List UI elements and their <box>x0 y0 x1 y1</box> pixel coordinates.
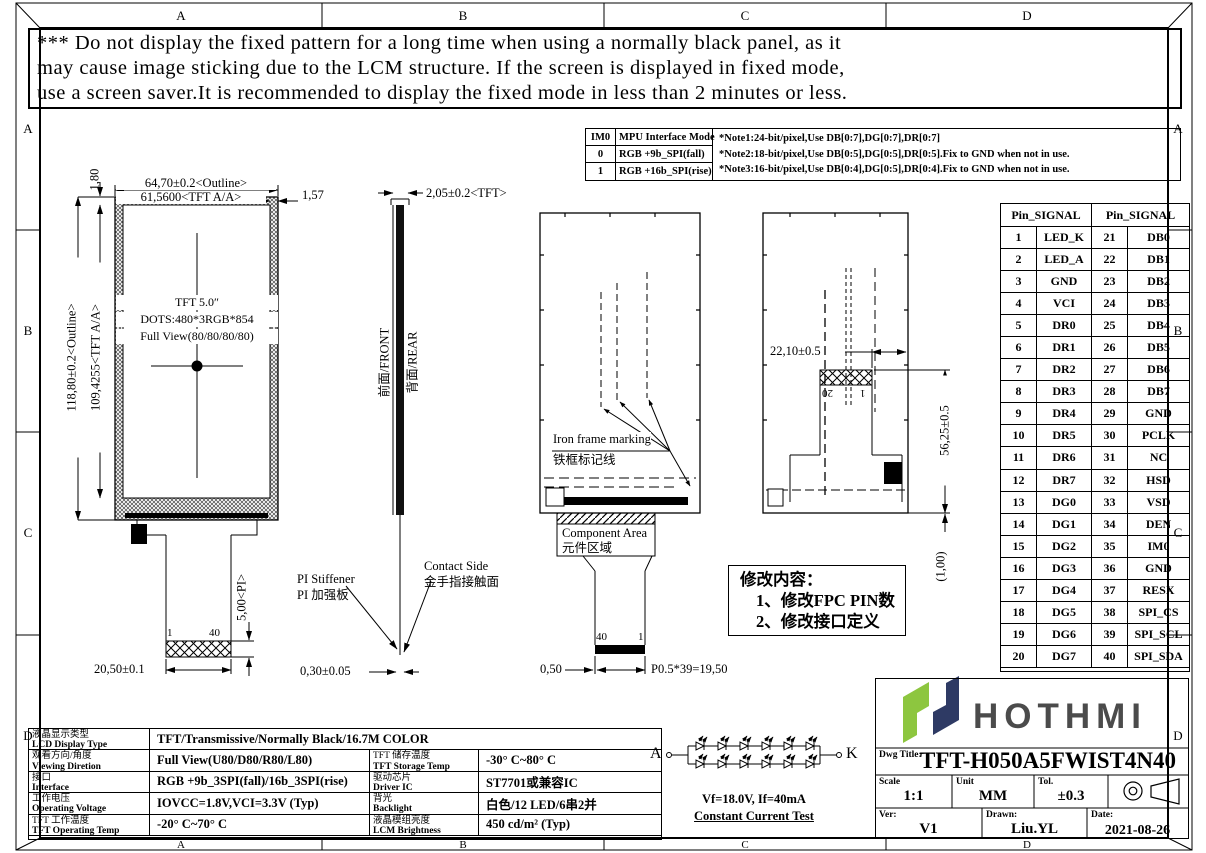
rear-right-dim-height: 56,25±0.5 <box>939 376 952 486</box>
spec-label-en: Viewing Diretion <box>32 762 149 772</box>
spec-label-en: Operating Voltage <box>32 804 149 814</box>
pin-signal-cell: DR0 <box>1037 315 1092 337</box>
scale-value: 1:1 <box>875 788 952 805</box>
pin-signal-cell: DG0 <box>1037 492 1092 514</box>
rear-left-dim-pitch: P0.5*39=19,50 <box>651 663 728 676</box>
if-note: *Note2:18-bit/pixel,Use DB[0:5],DG[0:5],… <box>719 147 1180 163</box>
rear-left-component-en: Component Area <box>562 526 647 541</box>
side-view-lineart <box>346 193 431 672</box>
pin-signal-cell: SPI_SCL <box>1128 624 1189 646</box>
rear-left-marking-zh: 铁框标记线 <box>553 453 616 468</box>
date-label: Date: <box>1091 810 1113 820</box>
pin-signal-cell: PCLK <box>1128 425 1189 447</box>
led-symbol <box>696 760 704 768</box>
led-symbol <box>806 742 814 750</box>
front-dim-outline-width: 64,70±0.2<Outline> <box>116 177 276 190</box>
front-dim-side-gap: 1,57 <box>302 189 324 202</box>
pin-signal-cell: DG3 <box>1037 558 1092 580</box>
zone-letter-left-c: C <box>8 525 48 541</box>
if-row-im0: 0 <box>586 146 616 163</box>
pin-signal-cell: RESX <box>1128 580 1189 602</box>
front-view-lineart <box>78 182 298 676</box>
pin-number-cell: 25 <box>1092 315 1128 337</box>
pin-number-cell: 40 <box>1092 646 1128 668</box>
pin-signal-cell: DB4 <box>1128 315 1189 337</box>
pin-signal-cell: SPI_SDA <box>1128 646 1189 668</box>
spec-label-en: LCM Brightness <box>373 826 478 836</box>
spec-label-en: Interface <box>32 783 149 793</box>
led-spec-text: Vf=18.0V, If=40mA <box>654 792 854 807</box>
pin-signal-cell: VCI <box>1037 293 1092 315</box>
pin-number-cell: 13 <box>1001 492 1037 514</box>
pin-signal-cell: DG1 <box>1037 514 1092 536</box>
pin-number-cell: 32 <box>1092 470 1128 492</box>
spec-value-cell: -30° C~80° C <box>479 750 661 771</box>
spec-label-cell: TFT 储存温度TFT Storage Temp <box>370 750 479 771</box>
pin-signal-cell: LED_A <box>1037 249 1092 271</box>
spec-label-en: Backlight <box>373 804 478 814</box>
led-symbol <box>718 742 726 750</box>
pin-number-cell: 35 <box>1092 536 1128 558</box>
pin-signal-cell: DG6 <box>1037 624 1092 646</box>
front-title-line: Full View(80/80/80/80) <box>116 329 278 344</box>
drawn-value: Liu.YL <box>982 821 1087 838</box>
pin-number-cell: 18 <box>1001 602 1037 624</box>
led-symbol <box>740 742 748 750</box>
spec-value-cell: IOVCC=1.8V,VCI=3.3V (Typ) <box>150 793 370 814</box>
pin-number-cell: 8 <box>1001 381 1037 403</box>
hothmi-logo-text: HOTHMI <box>973 697 1147 737</box>
spec-label-cell: 驱动芯片Driver IC <box>370 772 479 793</box>
pin-number-cell: 33 <box>1092 492 1128 514</box>
pin-table-header: Pin_SIGNAL <box>1092 204 1189 227</box>
pin-signal-cell: DG2 <box>1037 536 1092 558</box>
rear-left-dim-edge: 0,50 <box>540 663 562 676</box>
zone-letter-left-b: B <box>8 323 48 339</box>
pin-number-cell: 27 <box>1092 359 1128 381</box>
pin-number-cell: 37 <box>1092 580 1128 602</box>
spec-value-cell: 白色/12 LED/6串2并 <box>479 793 661 814</box>
if-col1-header: IM0 <box>586 129 616 146</box>
pin-signal-cell: DG4 <box>1037 580 1092 602</box>
pin-number-cell: 22 <box>1092 249 1128 271</box>
pin-number-cell: 29 <box>1092 403 1128 425</box>
pin-number-cell: 2 <box>1001 249 1037 271</box>
pin-signal-cell: DG7 <box>1037 646 1092 668</box>
spec-label-zh: 背光 <box>373 794 478 804</box>
pin-number-cell: 17 <box>1001 580 1037 602</box>
side-stiffener-label-zh: PI 加强板 <box>297 588 349 603</box>
pin-signal-cell: DR2 <box>1037 359 1092 381</box>
rear-right-dim-thickness: (1,00) <box>935 539 948 595</box>
pin-table: Pin_SIGNALPin_SIGNAL1LED_K21DB02LED_A22D… <box>1000 203 1190 672</box>
side-front-label: 前面/FRONT <box>378 308 393 418</box>
unit-value: MM <box>952 788 1034 805</box>
pin-signal-cell: DB5 <box>1128 337 1189 359</box>
spec-value-cell: -20° C~70° C <box>150 815 370 836</box>
zone-letter-top-a: A <box>161 8 201 24</box>
revision-title: 修改内容： <box>729 569 905 590</box>
interface-mode-table: IM0 MPU Interface Mode *Note1:24-bit/pix… <box>585 128 1181 181</box>
pin-signal-cell: HSD <box>1128 470 1189 492</box>
pin-number-cell: 20 <box>1001 646 1037 668</box>
spec-label-zh: 工作电压 <box>32 794 149 804</box>
ver-value: V1 <box>875 821 982 838</box>
front-pin-last: 40 <box>209 628 220 639</box>
pin-number-cell: 30 <box>1092 425 1128 447</box>
if-row-mode: RGB +9b_SPI(fall) <box>616 146 713 163</box>
pin-number-cell: 31 <box>1092 447 1128 469</box>
rear-left-pin-left: 40 <box>596 632 607 643</box>
pin-signal-cell: NC <box>1128 447 1189 469</box>
spec-label-en: LCD Display Type <box>32 740 149 750</box>
rear-left-component-zh: 元件区域 <box>562 541 612 556</box>
led-symbol <box>784 742 792 750</box>
spec-label-zh: 观看方向/角度 <box>32 751 149 761</box>
pin-table-header: Pin_SIGNAL <box>1001 204 1092 227</box>
led-symbol <box>762 760 770 768</box>
zone-letter-top-c: C <box>725 8 765 24</box>
spec-label-cell: 工作电压Operating Voltage <box>29 793 150 814</box>
dwg-title-value: TFT-H050A5FWIST4N40 <box>920 748 1170 774</box>
pin-number-cell: 23 <box>1092 271 1128 293</box>
front-dim-pi: 5,00<PI> <box>236 555 249 641</box>
side-contact-label-en: Contact Side <box>424 559 488 574</box>
pin-signal-cell: DR4 <box>1037 403 1092 425</box>
led-test-label: Constant Current Test <box>654 809 854 824</box>
pin-number-cell: 24 <box>1092 293 1128 315</box>
ver-label: Ver: <box>879 810 897 820</box>
warning-line: use a screen saver.It is recommended to … <box>30 81 1180 106</box>
pin-number-cell: 36 <box>1092 558 1128 580</box>
spec-value-cell: RGB +9b_3SPI(fall)/16b_3SPI(rise) <box>150 772 370 793</box>
pin-number-cell: 4 <box>1001 293 1037 315</box>
scale-label: Scale <box>879 777 900 787</box>
zone-letter-left-a: A <box>8 121 48 137</box>
zone-letter-bottom-c: C <box>725 839 765 851</box>
spec-label-cell: TFT 工作温度TFT Operating Temp <box>29 815 150 836</box>
front-title-line: TFT 5.0″ <box>116 295 278 310</box>
dwg-title-label: Dwg Title: <box>879 750 922 760</box>
spec-value-cell: 450 cd/m² (Typ) <box>479 815 661 836</box>
led-symbol <box>718 760 726 768</box>
led-symbol <box>806 760 814 768</box>
drawing-sheet: A B C D A B C D A B C D A B C D *** Do n… <box>0 0 1206 853</box>
zone-letter-top-b: B <box>443 8 483 24</box>
pin-number-cell: 5 <box>1001 315 1037 337</box>
led-symbol <box>784 760 792 768</box>
rear-right-pin-right: 1 <box>860 387 866 398</box>
unit-label: Unit <box>956 777 974 787</box>
warning-line: *** Do not display the fixed pattern for… <box>30 31 1180 56</box>
pin-number-cell: 12 <box>1001 470 1037 492</box>
pin-signal-cell: DR6 <box>1037 447 1092 469</box>
spec-label-zh: 液晶显示类型 <box>32 730 149 740</box>
tol-value: ±0.3 <box>1034 788 1108 805</box>
pin-number-cell: 28 <box>1092 381 1128 403</box>
zone-letter-bottom-d: D <box>1007 839 1047 851</box>
pin-number-cell: 11 <box>1001 447 1037 469</box>
front-dim-top-gap: 1,80 <box>89 160 102 200</box>
side-dim-thickness: 2,05±0.2<TFT> <box>426 187 507 200</box>
pin-number-cell: 39 <box>1092 624 1128 646</box>
if-row-im0: 1 <box>586 163 616 180</box>
spec-label-cell: 液晶模组亮度LCM Brightness <box>370 815 479 836</box>
front-dim-aa-height: 109,4255<TFT A/A> <box>90 263 103 453</box>
spec-label-cell: 接口Interface <box>29 772 150 793</box>
pin-number-cell: 10 <box>1001 425 1037 447</box>
date-value: 2021-08-26 <box>1087 823 1188 839</box>
pin-number-cell: 14 <box>1001 514 1037 536</box>
pin-signal-cell: SPI_CS <box>1128 602 1189 624</box>
side-contact-label-zh: 金手指接触面 <box>424 575 499 590</box>
pin-signal-cell: VSD <box>1128 492 1189 514</box>
revision-box: 修改内容： 1、修改FPC PIN数 2、修改接口定义 <box>728 565 906 636</box>
front-dim-tail-width: 20,50±0.1 <box>94 663 145 676</box>
led-symbol <box>696 742 704 750</box>
rear-left-marking-en: Iron frame marking <box>553 432 651 447</box>
side-rear-label: 背面/REAR <box>406 308 421 418</box>
spec-label-zh: TFT 工作温度 <box>32 816 149 826</box>
led-anode-label: A <box>650 745 662 763</box>
rear-view-right-lineart <box>763 213 950 532</box>
pin-number-cell: 9 <box>1001 403 1037 425</box>
pin-signal-cell: DB3 <box>1128 293 1189 315</box>
spec-label-en: Driver IC <box>373 783 478 793</box>
pin-signal-cell: DR7 <box>1037 470 1092 492</box>
spec-label-cell: 观看方向/角度Viewing Diretion <box>29 750 150 771</box>
spec-label-zh: TFT 储存温度 <box>373 751 478 761</box>
tol-label: Tol. <box>1038 777 1053 787</box>
spec-label-cell: 液晶显示类型LCD Display Type <box>29 729 150 750</box>
front-title-line: DOTS:480*3RGB*854 <box>116 312 278 327</box>
pin-number-cell: 15 <box>1001 536 1037 558</box>
pin-signal-cell: GND <box>1128 558 1189 580</box>
side-dim-pi-thickness: 0,30±0.05 <box>300 665 351 678</box>
rear-right-pin-left: 20 <box>822 387 833 398</box>
pin-signal-cell: DB6 <box>1128 359 1189 381</box>
revision-item: 1、修改FPC PIN数 <box>729 590 905 611</box>
led-cathode-label: K <box>846 745 858 763</box>
spec-value-cell: TFT/Transmissive/Normally Black/16.7M CO… <box>150 729 661 750</box>
front-dim-aa-width: 61,5600<TFT A/A> <box>116 191 266 204</box>
spec-label-en: TFT Storage Temp <box>373 762 478 772</box>
spec-label-zh: 液晶模组亮度 <box>373 816 478 826</box>
pin-signal-cell: DB2 <box>1128 271 1189 293</box>
pin-number-cell: 38 <box>1092 602 1128 624</box>
rear-right-dim-offset: 22,10±0.5 <box>770 345 821 358</box>
led-symbol <box>740 760 748 768</box>
front-dim-outline-height: 118,80±0.2<Outline> <box>66 258 79 458</box>
spec-table: 液晶显示类型LCD Display TypeTFT/Transmissive/N… <box>28 728 662 840</box>
if-col2-header: MPU Interface Mode <box>616 129 713 146</box>
pin-signal-cell: DEN <box>1128 514 1189 536</box>
pin-signal-cell: DB0 <box>1128 227 1189 249</box>
warning-box: *** Do not display the fixed pattern for… <box>28 28 1182 109</box>
pin-signal-cell: GND <box>1037 271 1092 293</box>
spec-value-cell: ST7701或兼容IC <box>479 772 661 793</box>
pin-signal-cell: DR5 <box>1037 425 1092 447</box>
if-note: *Note1:24-bit/pixel,Use DB[0:7],DG[0:7],… <box>719 131 1180 147</box>
spec-label-cell: 背光Backlight <box>370 793 479 814</box>
pin-signal-cell: DB7 <box>1128 381 1189 403</box>
rear-left-pin-right: 1 <box>638 632 644 643</box>
pin-signal-cell: DR1 <box>1037 337 1092 359</box>
pin-signal-cell: IM0 <box>1128 536 1189 558</box>
spec-value-cell: Full View(U80/D80/R80/L80) <box>150 750 370 771</box>
if-notes: *Note1:24-bit/pixel,Use DB[0:7],DG[0:7],… <box>713 129 1180 180</box>
pin-number-cell: 3 <box>1001 271 1037 293</box>
led-circuit-lineart <box>667 736 842 768</box>
spec-label-zh: 接口 <box>32 773 149 783</box>
zone-letter-bottom-a: A <box>161 839 201 851</box>
pin-signal-cell: DG5 <box>1037 602 1092 624</box>
revision-item: 2、修改接口定义 <box>729 611 905 632</box>
pin-number-cell: 7 <box>1001 359 1037 381</box>
pin-number-cell: 16 <box>1001 558 1037 580</box>
pin-number-cell: 6 <box>1001 337 1037 359</box>
pin-signal-cell: DR3 <box>1037 381 1092 403</box>
if-note: *Note3:16-bit/pixel,Use DB[0:4],DG[0:5],… <box>719 162 1180 178</box>
pin-signal-cell: GND <box>1128 403 1189 425</box>
pin-number-cell: 21 <box>1092 227 1128 249</box>
pin-number-cell: 19 <box>1001 624 1037 646</box>
front-pin-first: 1 <box>167 628 173 639</box>
pin-signal-cell: LED_K <box>1037 227 1092 249</box>
pin-number-cell: 1 <box>1001 227 1037 249</box>
drawn-label: Drawn: <box>986 810 1017 820</box>
zone-letter-top-d: D <box>1007 8 1047 24</box>
zone-letter-bottom-b: B <box>443 839 483 851</box>
pin-number-cell: 34 <box>1092 514 1128 536</box>
side-stiffener-label-en: PI Stiffener <box>297 572 355 587</box>
pin-number-cell: 26 <box>1092 337 1128 359</box>
warning-line: may cause image sticking due to the LCM … <box>30 56 1180 81</box>
spec-label-zh: 驱动芯片 <box>373 773 478 783</box>
pin-signal-cell: DB1 <box>1128 249 1189 271</box>
if-row-mode: RGB +16b_SPI(rise) <box>616 163 713 180</box>
led-symbol <box>762 742 770 750</box>
spec-label-en: TFT Operating Temp <box>32 826 149 836</box>
